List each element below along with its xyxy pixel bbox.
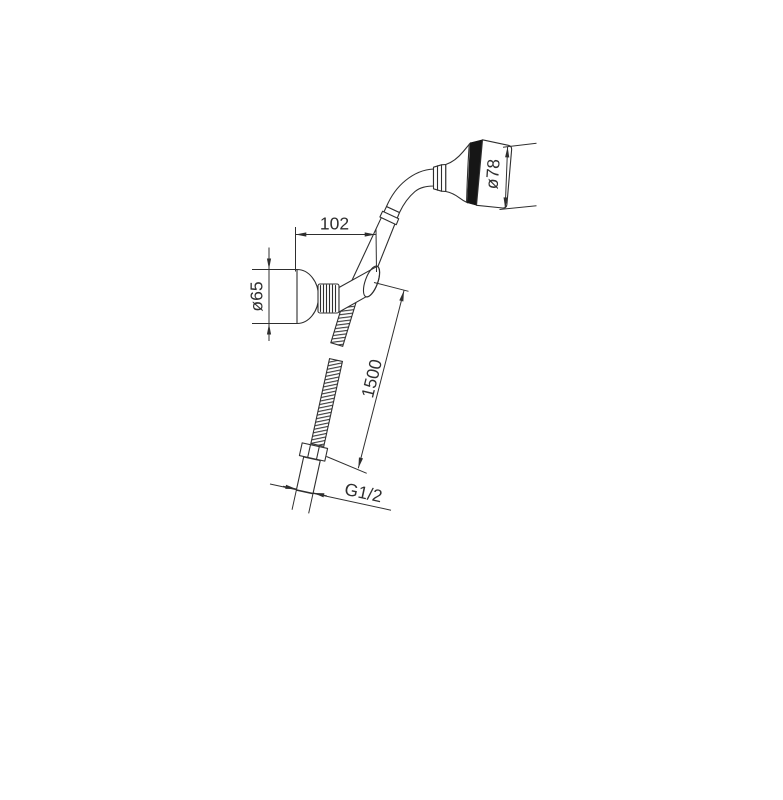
thread-connector	[292, 457, 320, 513]
dim-102-extension-right	[376, 229, 377, 272]
hose-lower-segment	[311, 359, 343, 447]
dimension-d65: ø65	[247, 248, 297, 342]
thread-connector-body	[296, 457, 320, 494]
dim-1500-label: 1500	[357, 357, 386, 400]
dimension-g12: G1/2	[270, 479, 391, 510]
dim-d65-label: ø65	[247, 281, 267, 311]
dim-1500-extension-top	[374, 283, 409, 292]
shower-hose	[311, 294, 358, 446]
technical-drawing: 102 ø65 ø78 1500 G1/2	[0, 0, 783, 800]
dim-g12-label: G1/2	[343, 479, 384, 506]
drawing-canvas: 102 ø65 ø78 1500 G1/2	[0, 0, 783, 800]
dim-d78-label: ø78	[482, 158, 504, 189]
head-collar	[434, 165, 446, 192]
dim-g12-arrow-right	[313, 493, 326, 496]
holder-dome	[297, 270, 319, 324]
head-neck	[387, 169, 434, 213]
dim-102-label: 102	[320, 214, 349, 234]
